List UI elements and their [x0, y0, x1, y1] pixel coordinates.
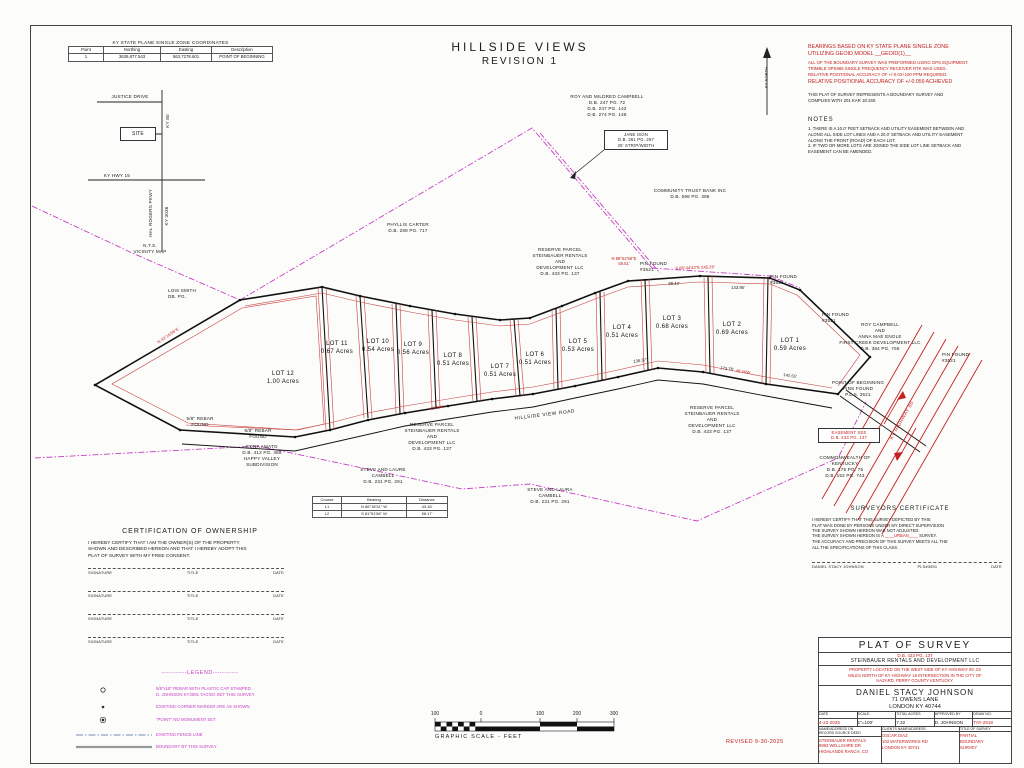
owner-steve-laure-cambell: STEVE AND LAURE CAMBELL D.B. 231 PG. 291 [343, 467, 423, 485]
pin-found-3: PIN FOUND #3521 [822, 312, 849, 324]
legend-item-fence: EXISTING FENCE LINE [156, 732, 203, 738]
pin-found-4: PIN FOUND #3521 [942, 352, 969, 364]
meta-total-acres: TOTAL ACRES 7.32 [896, 712, 935, 727]
title-block-title: PLAT OF SURVEY [819, 638, 1011, 653]
owner-phyllis-carter: PHYLLIS CARTER D.B. 288 PG. 717 [368, 222, 448, 234]
l2-bearing: S 81°51'56" W [342, 511, 407, 518]
meta-draw-no: DRAW NO. TAY-2918 [973, 712, 1011, 727]
l1-bearing: N 86°18'31" W [342, 504, 407, 511]
surveyor-cert-body2: THE ACCURACY AND PRECISION OF THIS SURVE… [812, 539, 948, 550]
title-label: TITLE [187, 570, 199, 575]
distance-label-2: 143.95' [726, 285, 750, 290]
l1-distance: 43.16' [407, 504, 448, 511]
title-block-parties-row: NAME/ADDRESS ON RECORD SOURCE DEED STEIN… [819, 727, 1011, 763]
signature-label: SIGNATURE [88, 570, 112, 575]
title-block-location: PROPERTY LOCATED ON THE WEST SIDE OF KY … [819, 666, 1011, 686]
vicinity-map-caption: N.T.S. VICINITY MAP [118, 243, 182, 255]
notes-body: 1. THERE IS A 10.0' FEET SETBACK AND UTI… [808, 126, 964, 155]
reserve-parcel-north: RESERVE PARCEL STEINBAUER RENTALS AND DE… [520, 247, 600, 277]
distance-label-1: 96.44' [662, 281, 686, 286]
date-label: DATE [273, 616, 284, 621]
surveyor-sig-pls: PLS#3591 [918, 564, 938, 569]
meta-scale: SCALE 1"=100' [858, 712, 897, 727]
bearing-col: Bearing [342, 497, 407, 504]
vicinity-hal-rogers-pkwy: HAL ROGERS PKWY [148, 188, 154, 238]
title-block-address1: 71 OWENS LANE [819, 697, 1011, 704]
title-block-address2: LONDON KY 40744 [819, 704, 1011, 711]
title-block-surveyor-info: DANIEL STACY JOHNSON 71 OWENS LANE LONDO… [819, 686, 1011, 712]
title-block-surveyor: DANIEL STACY JOHNSON [819, 686, 1011, 697]
signature-label: SIGNATURE [88, 616, 112, 621]
surveyor-sig-name: DANIEL STACY JOHNSON [812, 564, 864, 569]
rebar-found-1: 5/8" REBAR FOUND [175, 416, 225, 428]
ownership-sig-row-4: SIGNATURE TITLE DATE [88, 637, 284, 644]
class-line-suffix: SURVEY. [918, 533, 937, 538]
scale-tick-200: 200 [565, 711, 589, 717]
lot-2-label: LOT 2 0.69 Acres [702, 321, 762, 337]
title-block-meta-row: DATE 4-22-2025 SCALE 1"=100' TOTAL ACRES… [819, 712, 1011, 728]
surveyor-cert-class-line: THE SURVEY SHOWN HEREON IS A ____URBAN__… [812, 533, 937, 538]
course-col: Course [313, 497, 342, 504]
coord-description: POINT OF BEGINNING [212, 54, 273, 61]
reserve-parcel-east: RESERVE PARCEL STEINBAUER RENTALS AND DE… [672, 405, 752, 435]
coord-col-northing: Northing [104, 47, 161, 54]
coord-col-description: Description [212, 47, 273, 54]
bearing-basis-note: BEARINGS BASED ON KY STATE PLANE SINGLE … [808, 44, 949, 59]
vicinity-ky-hwy-15: KY HWY 15 [95, 173, 139, 179]
point-of-beginning-label: POINT OF BEGINNING PINS FOUND P.L.S. 352… [818, 380, 898, 398]
scale-tick-100R: 100 [528, 711, 552, 717]
legend-item-existing-corner: EXISTING CORNER MARKER ARE AS SHOWN [156, 704, 250, 710]
surveyor-cert-body1: I HEREBY CERTIFY THAT THIS SURVEY DEPICT… [812, 517, 944, 534]
course-table: Course Bearing Distance L1 N 86°18'31" W… [312, 496, 448, 518]
course-row-l1: L1 N 86°18'31" W 43.16' [313, 504, 448, 511]
gps-note: ALL OF THE BOUNDARY SURVEY WAS PREFORMED… [808, 60, 968, 77]
title-block: PLAT OF SURVEY D.B. 433 PG. 137 STEINBAU… [818, 637, 1012, 764]
meta-approved-by: APPROVED BY D. JOHNSON [935, 712, 974, 727]
rebar-found-2: 5/8" REBAR FOUND [233, 428, 283, 440]
vicinity-justice-drive: JUSTICE DRIVE [100, 94, 160, 100]
notes-title: NOTES [808, 116, 834, 124]
owner-lois-smith: LOIS SMITH DB. PG. [168, 288, 196, 300]
coord-northing: 3639,877.543 [104, 54, 161, 61]
lot-11-label: LOT 11 0.67 Acres [307, 340, 367, 356]
accuracy-achieved-note: RELATIVE POSITIONAL ACCURACY OF +/-0.059… [808, 79, 952, 86]
distance-col: Distance [407, 497, 448, 504]
coord-point: 1 [69, 54, 104, 61]
plat-sheet: KY STATE PLANE SINGLE ZONE COORDINATES P… [0, 0, 1024, 768]
reserve-parcel-west: RESERVE PARCEL STEINBAUER RENTALS AND DE… [392, 422, 472, 452]
scale-caption: GRAPHIC SCALE - FEET [435, 734, 523, 740]
coordinate-table-title: KY STATE PLANE SINGLE ZONE COORDINATES [68, 40, 273, 45]
survey-class-value: ____URBAN____ [885, 533, 918, 538]
ownership-sig-row-3: SIGNATURE TITLE DATE [88, 614, 284, 621]
surveyor-sig-row: DANIEL STACY JOHNSON PLS#3591 DATE [812, 562, 1002, 569]
l1-course: L1 [313, 504, 342, 511]
title-label: TITLE [187, 616, 199, 621]
date-label: DATE [273, 639, 284, 644]
pin-found-2: PIN FOUND #3521 [770, 274, 797, 286]
lot-1-label: LOT 1 0.59 Acres [760, 337, 820, 353]
signature-label: SIGNATURE [88, 593, 112, 598]
scale-tick-300: 300 [602, 711, 626, 717]
legend-item-point: "POINT" NO MONUMENT SET [156, 717, 216, 723]
date-label: DATE [273, 570, 284, 575]
vicinity-ky3036: KY 3036 [164, 201, 170, 231]
signature-label: SIGNATURE [88, 639, 112, 644]
page-subtitle: REVISION 1 [420, 56, 620, 67]
ownership-cert-title: CERTIFICATION OF OWNERSHIP [110, 527, 270, 536]
owner-roy-mildred-campbell: ROY AND MILDRED CAMPBELL D.B. 247 PG. 72… [557, 94, 657, 118]
survey-title-cell: TITLE OF SURVEY PARTIAL BOUNDARY SURVEY [960, 727, 1011, 763]
coord-easting: 563,7278.601 [161, 54, 212, 61]
owner-community-trust-bank: COMMUNITY TRUST BANK INC D.B. 598 PG. 38… [640, 188, 740, 200]
ownership-sig-row-2: SIGNATURE TITLE DATE [88, 591, 284, 598]
title-label: TITLE [187, 639, 199, 644]
bearing-label-1: N 88°52'56"E 58.51' [604, 256, 644, 266]
vicinity-ky80: KY 80 [165, 108, 171, 134]
course-row-l2: L2 S 81°51'56" W 58.17' [313, 511, 448, 518]
surveyor-cert-title: SURVEYORS CERTIFICATE [830, 506, 970, 514]
easement-callout: EASEMENT SEE D.B. 433 PG. 137 [818, 428, 880, 443]
coord-col-easting: Easting [161, 47, 212, 54]
legend-title: -----------LEGEND----------- [100, 670, 300, 677]
class-line-prefix: THE SURVEY SHOWN HEREON IS A [812, 533, 885, 538]
surveyor-sig-date: DATE [991, 564, 1002, 569]
scale-tick-100L: 100 [423, 711, 447, 717]
ownership-cert-body: I HEREBY CERTIFY THAT I AM THE OWNER(S) … [88, 541, 247, 560]
callout-jane-ison: JANE ISON D.B. 361 PG. 267 25' STRIP/WID… [604, 130, 668, 150]
legend-symbols [76, 688, 152, 747]
north-arrow-label: KY NORTH [765, 62, 770, 92]
date-label: DATE [273, 593, 284, 598]
owner-commonwealth-kentucky: COMMONWEALTH OF KENTUCKY D.B. 175 PG. 75… [805, 455, 885, 479]
lot-12-label: LOT 12 1.00 Acres [253, 370, 313, 386]
meta-date: DATE 4-22-2025 [819, 712, 858, 727]
coordinate-table: KY STATE PLANE SINGLE ZONE COORDINATES P… [68, 40, 273, 62]
legend-item-boundary: BOUNDARY BY THIS SURVEY [156, 744, 217, 750]
scale-tick-0: 0 [469, 711, 493, 717]
ownership-sig-row-1: SIGNATURE TITLE DATE [88, 568, 284, 575]
coord-col-point: Point [69, 47, 104, 54]
owner-roy-campbell-engle: ROY CAMPBELL AND ANNA MAE ENGLE FIRST CR… [830, 322, 930, 352]
compliance-note: THIS PLAT OF SURVEY REPRESENTS A BOUNDAR… [808, 92, 943, 104]
title-block-deed: D.B. 433 PG. 137 STEINBAUER RENTALS AND … [819, 653, 1011, 666]
client-cell: CLIENTS NAME/ADDRESS OSCAR DIAZ 103 WATE… [882, 727, 960, 763]
title-block-company: STEINBAUER RENTALS AND DEVELOPMENT LLC [819, 658, 1011, 665]
vicinity-map-roads [88, 90, 205, 252]
owner-edna-amato: EDNA AMATO D.B. 412 PG. 469 HAPPY VALLEY… [222, 444, 302, 468]
graphic-scale-bar [435, 718, 614, 731]
owner-steve-laura-cambell: STEVE AND LAURA CAMBELL D.B. 231 PG. 291 [510, 487, 590, 505]
callout-leader [570, 150, 604, 179]
l2-distance: 58.17' [407, 511, 448, 518]
l2-course: L2 [313, 511, 342, 518]
vicinity-site-box: SITE [120, 127, 156, 141]
legend-item-rebar-set: 5/8"x18" REBAR WITH PLASTIC CAP STAMPED … [156, 686, 255, 697]
record-owner-cell: NAME/ADDRESS ON RECORD SOURCE DEED STEIN… [819, 727, 882, 763]
title-label: TITLE [187, 593, 199, 598]
page-title: HILLSIDE VIEWS [420, 40, 620, 54]
revised-note: REVISED 9-30-2025 [726, 739, 784, 745]
coord-row: 1 3639,877.543 563,7278.601 POINT OF BEG… [69, 54, 273, 61]
